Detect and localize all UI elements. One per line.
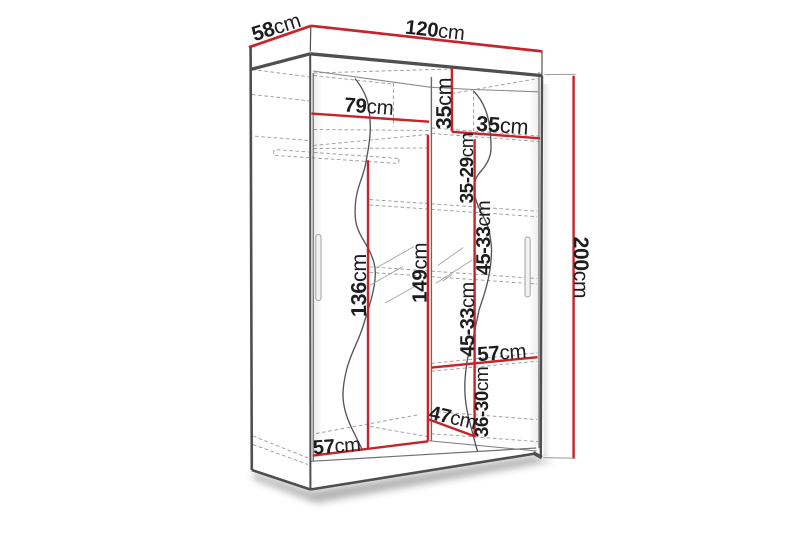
svg-text:200cm: 200cm <box>569 237 592 299</box>
svg-text:136cm: 136cm <box>347 254 371 317</box>
svg-text:57cm: 57cm <box>476 340 526 367</box>
svg-text:35cm: 35cm <box>475 112 529 140</box>
svg-text:149cm: 149cm <box>409 243 432 303</box>
svg-text:45-33cm: 45-33cm <box>473 201 495 275</box>
svg-text:35-29cm: 35-29cm <box>457 133 478 203</box>
svg-text:79cm: 79cm <box>344 94 395 120</box>
svg-text:35cm: 35cm <box>432 78 456 129</box>
svg-text:57cm: 57cm <box>312 434 361 459</box>
